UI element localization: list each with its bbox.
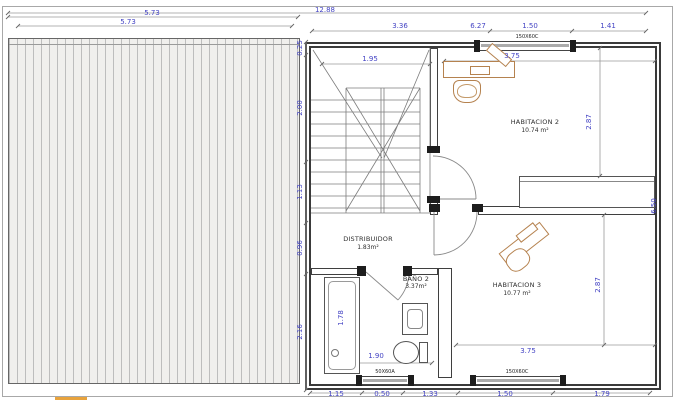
terrace-inner-line [9,44,299,45]
window-bottom [474,376,562,385]
window-post [560,375,566,386]
dim-terrace-a: 5.73 [132,9,172,17]
window-label-bath: 50X60A [360,369,410,375]
dim-bath-width: 1.90 [356,352,396,360]
dim-bottom-1: 1.15 [316,390,356,398]
dim-left-2: 2.00 [296,93,304,123]
dim-right-total: 6.27 [458,22,498,30]
wall-bath-top-right [410,268,438,275]
room-label-bano: BAÑO 2 [386,276,446,283]
dim-height-total: 6.50 [650,191,658,221]
door-post [427,196,440,203]
tub-drain [331,349,339,357]
room-label-hab2: HABITACION 2 [490,119,580,126]
wall-bath-top-left [311,268,362,275]
terrace-hatch-area [8,38,300,384]
room-label-distribuidor: DISTRIBUIDOR [323,236,413,243]
dim-hab2-width: 3.75 [492,52,532,60]
window-post [408,375,414,386]
dim-stair-width: 1.95 [350,55,390,63]
dim-hab2-depth: 2.87 [585,107,593,137]
room-area-hab3: 10.77 m² [472,290,562,297]
chair-hab2 [453,80,481,103]
door-post [357,266,366,276]
room-label-hab3: HABITACION 3 [472,282,562,289]
window-post [474,40,480,52]
window-post [356,375,362,386]
toilet-bowl [393,341,419,364]
chair-seat [457,84,477,98]
dim-top-seg-1: 3.36 [380,22,420,30]
window-bath [360,376,410,385]
window-label-bottom: 150X60C [492,369,542,375]
dim-bottom-5: 1.79 [582,390,622,398]
room-area-bano: 3.37m² [386,283,446,290]
door-post [429,204,440,212]
window-post [470,375,476,386]
toilet-tank [419,342,428,363]
keyboard-hab2 [470,66,490,75]
sink [402,303,428,335]
dim-left-4: 0.96 [296,233,304,263]
dim-bottom-3: 1.33 [410,390,450,398]
dim-top-seg-3: 1.41 [588,22,628,30]
dim-left-3: 1.13 [296,177,304,207]
wardrobe-hab2 [519,176,655,208]
dim-bottom-4: 1.50 [485,390,525,398]
scale-mark [55,397,87,400]
wall-stair-hab2 [430,48,438,152]
wardrobe-line [520,181,654,182]
window-label-top: 150X60C [502,34,552,40]
dim-total-width: 12.88 [305,6,345,14]
room-area-hab2: 10.74 m² [490,127,580,134]
dim-hab3-depth: 2.87 [594,270,602,300]
dim-terrace-b: 5.73 [108,18,148,26]
door-post [472,204,483,212]
sink-basin [407,309,423,329]
room-area-distribuidor: 1.83m² [323,244,413,251]
floor-plan-canvas: 12.88 5.73 5.73 3.36 6.27 1.50 1.41 0.25… [0,0,677,403]
door-post [427,146,440,153]
window-glass [363,379,407,382]
dim-bottom-2: 0.50 [362,390,402,398]
window-post [570,40,576,52]
dim-left-1: 0.25 [296,33,304,63]
dim-top-seg-2: 1.50 [510,22,550,30]
dim-left-5: 2.16 [296,317,304,347]
dim-hab3-width: 3.75 [508,347,548,355]
dim-shower-length: 1.78 [337,303,345,333]
window-glass [477,379,559,382]
